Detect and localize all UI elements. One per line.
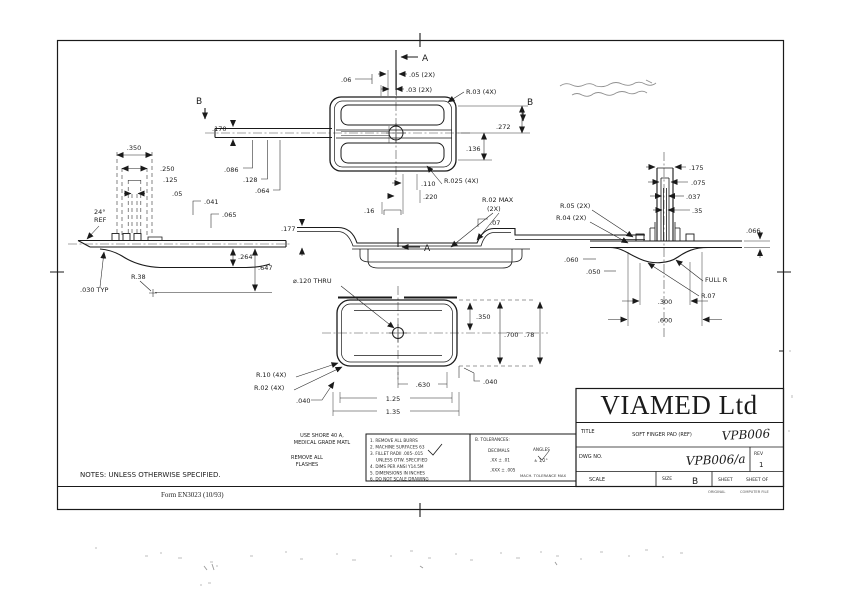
size-label: SIZE: [662, 476, 672, 482]
sheet-of-label: SHEET OF: [746, 477, 769, 483]
dim-label: .040: [296, 397, 310, 405]
tol-line: UNLESS OTW. SPECIFIED: [376, 458, 428, 463]
dim-label: .350: [127, 144, 141, 152]
dim-label: (2X): [487, 205, 501, 213]
section-letter: B: [527, 98, 533, 108]
rev-value: 1: [759, 461, 763, 469]
dim-label: 1.35: [386, 408, 400, 416]
dim-label: R.03 (4X): [466, 88, 496, 96]
tol-line: 5. DIMENSIONS IN INCHES: [370, 471, 425, 476]
dim-label: .075: [691, 179, 705, 187]
stamp-right: COMPUTER FILE: [740, 490, 769, 494]
tol-line: 3. FILLET RADII .005-.015: [370, 451, 423, 456]
title-label: TITLE: [580, 429, 595, 435]
dim-label: .041: [204, 198, 218, 206]
dim-label: .700: [504, 331, 518, 339]
dim-label: .040: [483, 378, 497, 386]
tol-col: DECIMALS: [488, 448, 510, 453]
dim-label: .07: [490, 219, 500, 227]
note-material-line1: USE SHORE 40 A,: [300, 433, 344, 439]
dim-label: .060: [564, 256, 578, 264]
tol-value: .XXX ± .005: [490, 468, 516, 473]
dim-label: .264: [238, 253, 252, 261]
sheet-label: SHEET: [718, 477, 733, 483]
company-name: VIAMED Ltd: [600, 390, 757, 420]
title-handwritten: VPB006: [721, 426, 770, 443]
form-number: Form EN3023 (10/93): [161, 491, 224, 499]
dim-label: 24°: [94, 208, 106, 216]
dim-label: .600: [658, 317, 672, 325]
dim-label: .125: [163, 176, 177, 184]
section-letter: B: [196, 97, 202, 107]
dim-label: .35: [692, 207, 702, 215]
dim-label: R.02 MAX: [482, 196, 514, 204]
dim-label: .175: [689, 164, 703, 172]
dim-label: .272: [496, 123, 510, 131]
tol-side-note: MACH. TOLERANCE MAX: [520, 473, 567, 478]
dim-label: .03 (2X): [406, 86, 432, 94]
dim-label: R.05 (2X): [560, 202, 590, 210]
tol-value: .XX ± .01: [490, 458, 510, 463]
dim-label: R.10 (4X): [256, 371, 286, 379]
tol-line: 6. DO NOT SCALE DRAWING: [370, 477, 429, 482]
note-material-line2: MEDICAL GRADE MATL: [294, 440, 351, 446]
dim-label: REF: [94, 216, 107, 224]
dim-label: .177: [281, 225, 295, 233]
tol-header: B. TOLERANCES:: [475, 437, 510, 442]
stamp-left: ORIGINAL: [708, 490, 725, 494]
dim-label: 1.25: [386, 395, 400, 403]
tol-line: 4. DIMS PER ANSI Y14.5M: [370, 464, 424, 469]
dim-label: .065: [222, 211, 236, 219]
title-text: SOFT FINGER PAD (REF): [632, 432, 692, 438]
size-value: B: [692, 477, 698, 487]
rev-label: REV: [754, 451, 764, 457]
dim-label: R.04 (2X): [556, 214, 586, 222]
scanned-drawing-sheet: .05 (2X) .03 (2X) .06 R.03 (4X) .272 .13…: [0, 0, 842, 595]
dim-label: R.07: [701, 292, 716, 300]
dim-label: R.02 (4X): [254, 384, 284, 392]
section-letter: A: [424, 244, 431, 254]
dim-label: .066: [746, 227, 760, 235]
dim-label: .05 (2X): [409, 71, 435, 79]
tol-col: ANGLES: [533, 447, 550, 452]
dim-label: .300: [658, 298, 672, 306]
tol-line: 2. MACHINE SURFACES 63: [370, 445, 425, 450]
dim-label: .136: [466, 145, 480, 153]
dim-label: R.025 (4X): [444, 177, 478, 185]
dim-label: FULL R: [705, 276, 728, 284]
dim-label: .16: [364, 207, 374, 215]
dim-label: .220: [423, 193, 437, 201]
dim-label: .06: [341, 76, 351, 84]
note-flash-line2: FLASHES: [296, 462, 318, 468]
dim-label: .250: [160, 165, 174, 173]
dim-label: .110: [421, 180, 435, 188]
dim-label: .030 TYP: [80, 286, 108, 294]
dim-label: ⌀.120 THRU: [293, 277, 332, 285]
tol-line: 1. REMOVE ALL BURRS: [370, 438, 418, 443]
dim-label: .064: [255, 187, 269, 195]
general-note: NOTES: UNLESS OTHERWISE SPECIFIED.: [80, 471, 221, 479]
dwg-no-value: VPB006/a: [686, 452, 746, 468]
dim-label: .170: [212, 125, 226, 133]
note-flash-line1: REMOVE ALL: [291, 455, 323, 461]
dim-label: .647: [258, 264, 272, 272]
dim-label: .128: [243, 176, 257, 184]
section-letter: A: [422, 54, 429, 64]
drawing-canvas: .05 (2X) .03 (2X) .06 R.03 (4X) .272 .13…: [0, 0, 842, 595]
scale-label: SCALE: [589, 477, 605, 483]
dim-label: .630: [416, 381, 430, 389]
dim-label: .037: [686, 193, 700, 201]
dim-label: .78: [524, 331, 534, 339]
dim-label: R.38: [131, 273, 146, 281]
dim-label: .050: [586, 268, 600, 276]
dim-label: .05: [172, 190, 182, 198]
dwg-no-label: DWG NO.: [579, 454, 603, 460]
dim-label: .086: [224, 166, 238, 174]
dim-label: .350: [476, 313, 490, 321]
